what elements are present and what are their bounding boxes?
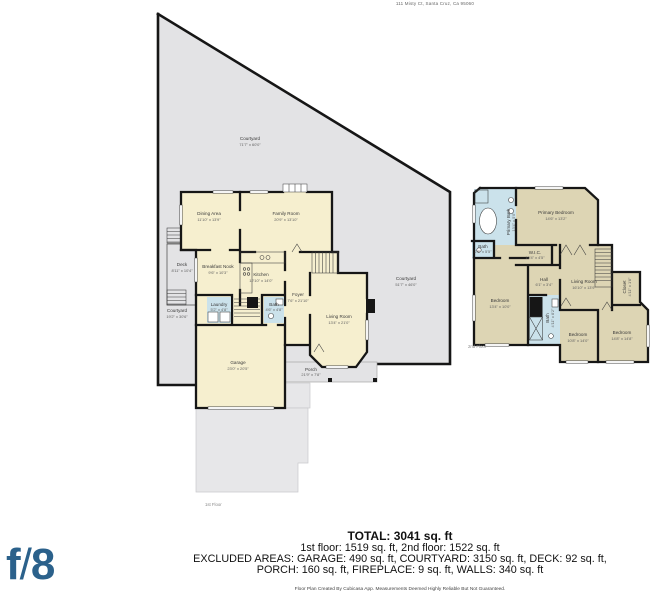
svg-text:Bedroom: Bedroom	[569, 332, 588, 337]
window-icon	[326, 366, 348, 368]
label-courtyard-left: Courtyard 19'2" x 30'6"	[166, 308, 188, 319]
svg-text:Deck: Deck	[177, 262, 188, 267]
label-family-room: Family Room 20'9" x 13'10"	[272, 211, 299, 222]
svg-text:Courtyard: Courtyard	[240, 136, 261, 141]
svg-text:10'8" x 14'0": 10'8" x 14'0"	[567, 338, 589, 343]
label-dining-area: Dining Area 11'10" x 13'9"	[197, 211, 221, 222]
svg-text:11'10" x 13'9": 11'10" x 13'9"	[197, 217, 221, 222]
svg-text:21'9" x 7'8": 21'9" x 7'8"	[301, 372, 321, 377]
svg-text:4'6" x 4'8": 4'6" x 4'8"	[265, 307, 283, 312]
window-icon	[213, 191, 233, 193]
toilet-icon	[268, 313, 273, 318]
svg-text:Foyer: Foyer	[292, 292, 304, 297]
first-floor-plan: Courtyard 71'7" x 60'0" Dining Area 11'1…	[158, 14, 450, 507]
svg-text:Bedroom: Bedroom	[613, 330, 632, 335]
label-courtyard-right: Courtyard 51'7" x 46'0"	[395, 276, 417, 287]
second-floor-label: 2nd Floor	[468, 344, 487, 349]
window-icon	[566, 361, 588, 363]
svg-text:19'2" x 30'6": 19'2" x 30'6"	[166, 314, 188, 319]
porch-post	[373, 378, 377, 382]
svg-text:6'1" x 3'4": 6'1" x 3'4"	[535, 282, 553, 287]
toilet-icon	[549, 334, 554, 339]
svg-text:16'10" x 13'9": 16'10" x 13'9"	[572, 285, 596, 290]
svg-text:14'6" x 13'2": 14'6" x 13'2"	[545, 216, 567, 221]
svg-text:Kitchen: Kitchen	[253, 272, 269, 277]
area-summary: TOTAL: 3041 sq. ft 1st floor: 1519 sq. f…	[150, 531, 650, 576]
second-floor-plan: Primary Bath 13'4" x 5'0" Primary Bedroo…	[468, 187, 649, 363]
svg-text:Primary Bedroom: Primary Bedroom	[538, 210, 574, 215]
svg-text:13'4" x 21'0": 13'4" x 21'0"	[328, 320, 350, 325]
svg-text:12'10" x 14'0": 12'10" x 14'0"	[249, 278, 273, 283]
window-icon	[485, 344, 509, 346]
svg-text:2'8" x 5'5": 2'8" x 5'5"	[474, 249, 492, 254]
window-icon	[180, 205, 182, 225]
svg-text:10'4" x 4'5": 10'4" x 4'5"	[525, 255, 545, 260]
label-bedroom-mid: Bedroom 10'8" x 14'0"	[567, 332, 589, 343]
garage-door-icon	[208, 407, 274, 409]
logo-slash: /	[20, 540, 31, 589]
svg-text:71'7" x 60'0": 71'7" x 60'0"	[239, 142, 261, 147]
fireplace-icon	[366, 299, 375, 313]
label-living-room-first: Living Room 13'4" x 21'0"	[326, 314, 352, 325]
svg-text:51'7" x 46'0": 51'7" x 46'0"	[395, 282, 417, 287]
svg-text:Breakfast Nook: Breakfast Nook	[202, 264, 234, 269]
washer-icon	[530, 297, 543, 317]
label-bedroom-left: Bedroom 13'4" x 10'0"	[489, 298, 511, 309]
svg-text:9'6" x 10'3": 9'6" x 10'3"	[208, 270, 228, 275]
window-icon	[195, 258, 197, 282]
dryer-icon	[220, 312, 230, 322]
washer-icon	[208, 312, 218, 322]
svg-text:7'6" x 21'10": 7'6" x 21'10"	[287, 298, 309, 303]
svg-text:Family Room: Family Room	[272, 211, 299, 216]
window-icon	[606, 361, 634, 363]
excluded-areas-line-2: PORCH: 160 sq. ft, FIREPLACE: 9 sq. ft, …	[150, 565, 650, 576]
label-living-room-second: Living Room 16'10" x 13'9"	[571, 279, 597, 290]
svg-text:4'11" x 8'2": 4'11" x 8'2"	[550, 308, 555, 328]
logo-f: f	[6, 540, 20, 589]
svg-text:20'9" x 13'10": 20'9" x 13'10"	[274, 217, 298, 222]
window-icon	[535, 187, 563, 189]
floors-area-line: 1st floor: 1519 sq. ft, 2nd floor: 1522 …	[150, 543, 650, 554]
svg-text:5'2" x 4'8": 5'2" x 4'8"	[210, 307, 228, 312]
label-laundry: Laundry 5'2" x 4'8"	[210, 302, 228, 312]
first-floor-label: 1st Floor	[205, 502, 222, 507]
walkway-area	[283, 383, 310, 408]
svg-text:Living Room: Living Room	[326, 314, 352, 319]
svg-text:Bedroom: Bedroom	[491, 298, 510, 303]
svg-text:13'4" x 10'0": 13'4" x 10'0"	[489, 304, 511, 309]
floor-plan-drawing: Courtyard 71'7" x 60'0" Dining Area 11'1…	[0, 0, 651, 600]
window-icon	[250, 191, 268, 193]
porch-post	[328, 378, 332, 382]
driveway-area	[196, 408, 308, 492]
sink-icon	[552, 299, 558, 307]
total-area-line: TOTAL: 3041 sq. ft	[150, 531, 650, 543]
svg-text:Courtyard: Courtyard	[167, 308, 188, 313]
window-icon	[473, 295, 475, 321]
label-bedroom-right: Bedroom 14'8" x 14'8"	[611, 330, 633, 341]
svg-text:13'4" x 5'0": 13'4" x 5'0"	[511, 212, 516, 232]
svg-text:Dining Area: Dining Area	[197, 211, 221, 216]
window-icon	[366, 320, 368, 340]
window-icon	[473, 205, 475, 223]
sink-icon	[509, 198, 514, 203]
svg-text:Courtyard: Courtyard	[396, 276, 417, 281]
svg-text:Garage: Garage	[230, 360, 246, 365]
excluded-areas-line-1: EXCLUDED AREAS: GARAGE: 490 sq. ft, COUR…	[150, 554, 650, 565]
disclaimer-text: Floor Plan Created By Cubicasa App. Meas…	[150, 587, 650, 592]
utility-icon	[247, 297, 258, 308]
svg-text:8'11" x 10'4": 8'11" x 10'4"	[171, 268, 193, 273]
window-icon	[647, 325, 649, 347]
floor-plan-page: 111 Misty Ct, Santa Cruz, Ca 95060	[0, 0, 651, 600]
f8-logo: f/8	[6, 541, 54, 589]
label-courtyard-main: Courtyard 71'7" x 60'0"	[239, 136, 261, 147]
courtyard-left-area	[158, 363, 196, 385]
svg-text:Living Room: Living Room	[571, 279, 597, 284]
svg-text:23'0" x 20'5": 23'0" x 20'5"	[227, 366, 249, 371]
svg-text:14'8" x 14'8": 14'8" x 14'8"	[611, 336, 633, 341]
bathtub-icon	[480, 208, 497, 234]
logo-eight: 8	[31, 540, 54, 589]
deck-area	[167, 244, 196, 305]
svg-text:4'11" x 1'8": 4'11" x 1'8"	[627, 277, 632, 297]
